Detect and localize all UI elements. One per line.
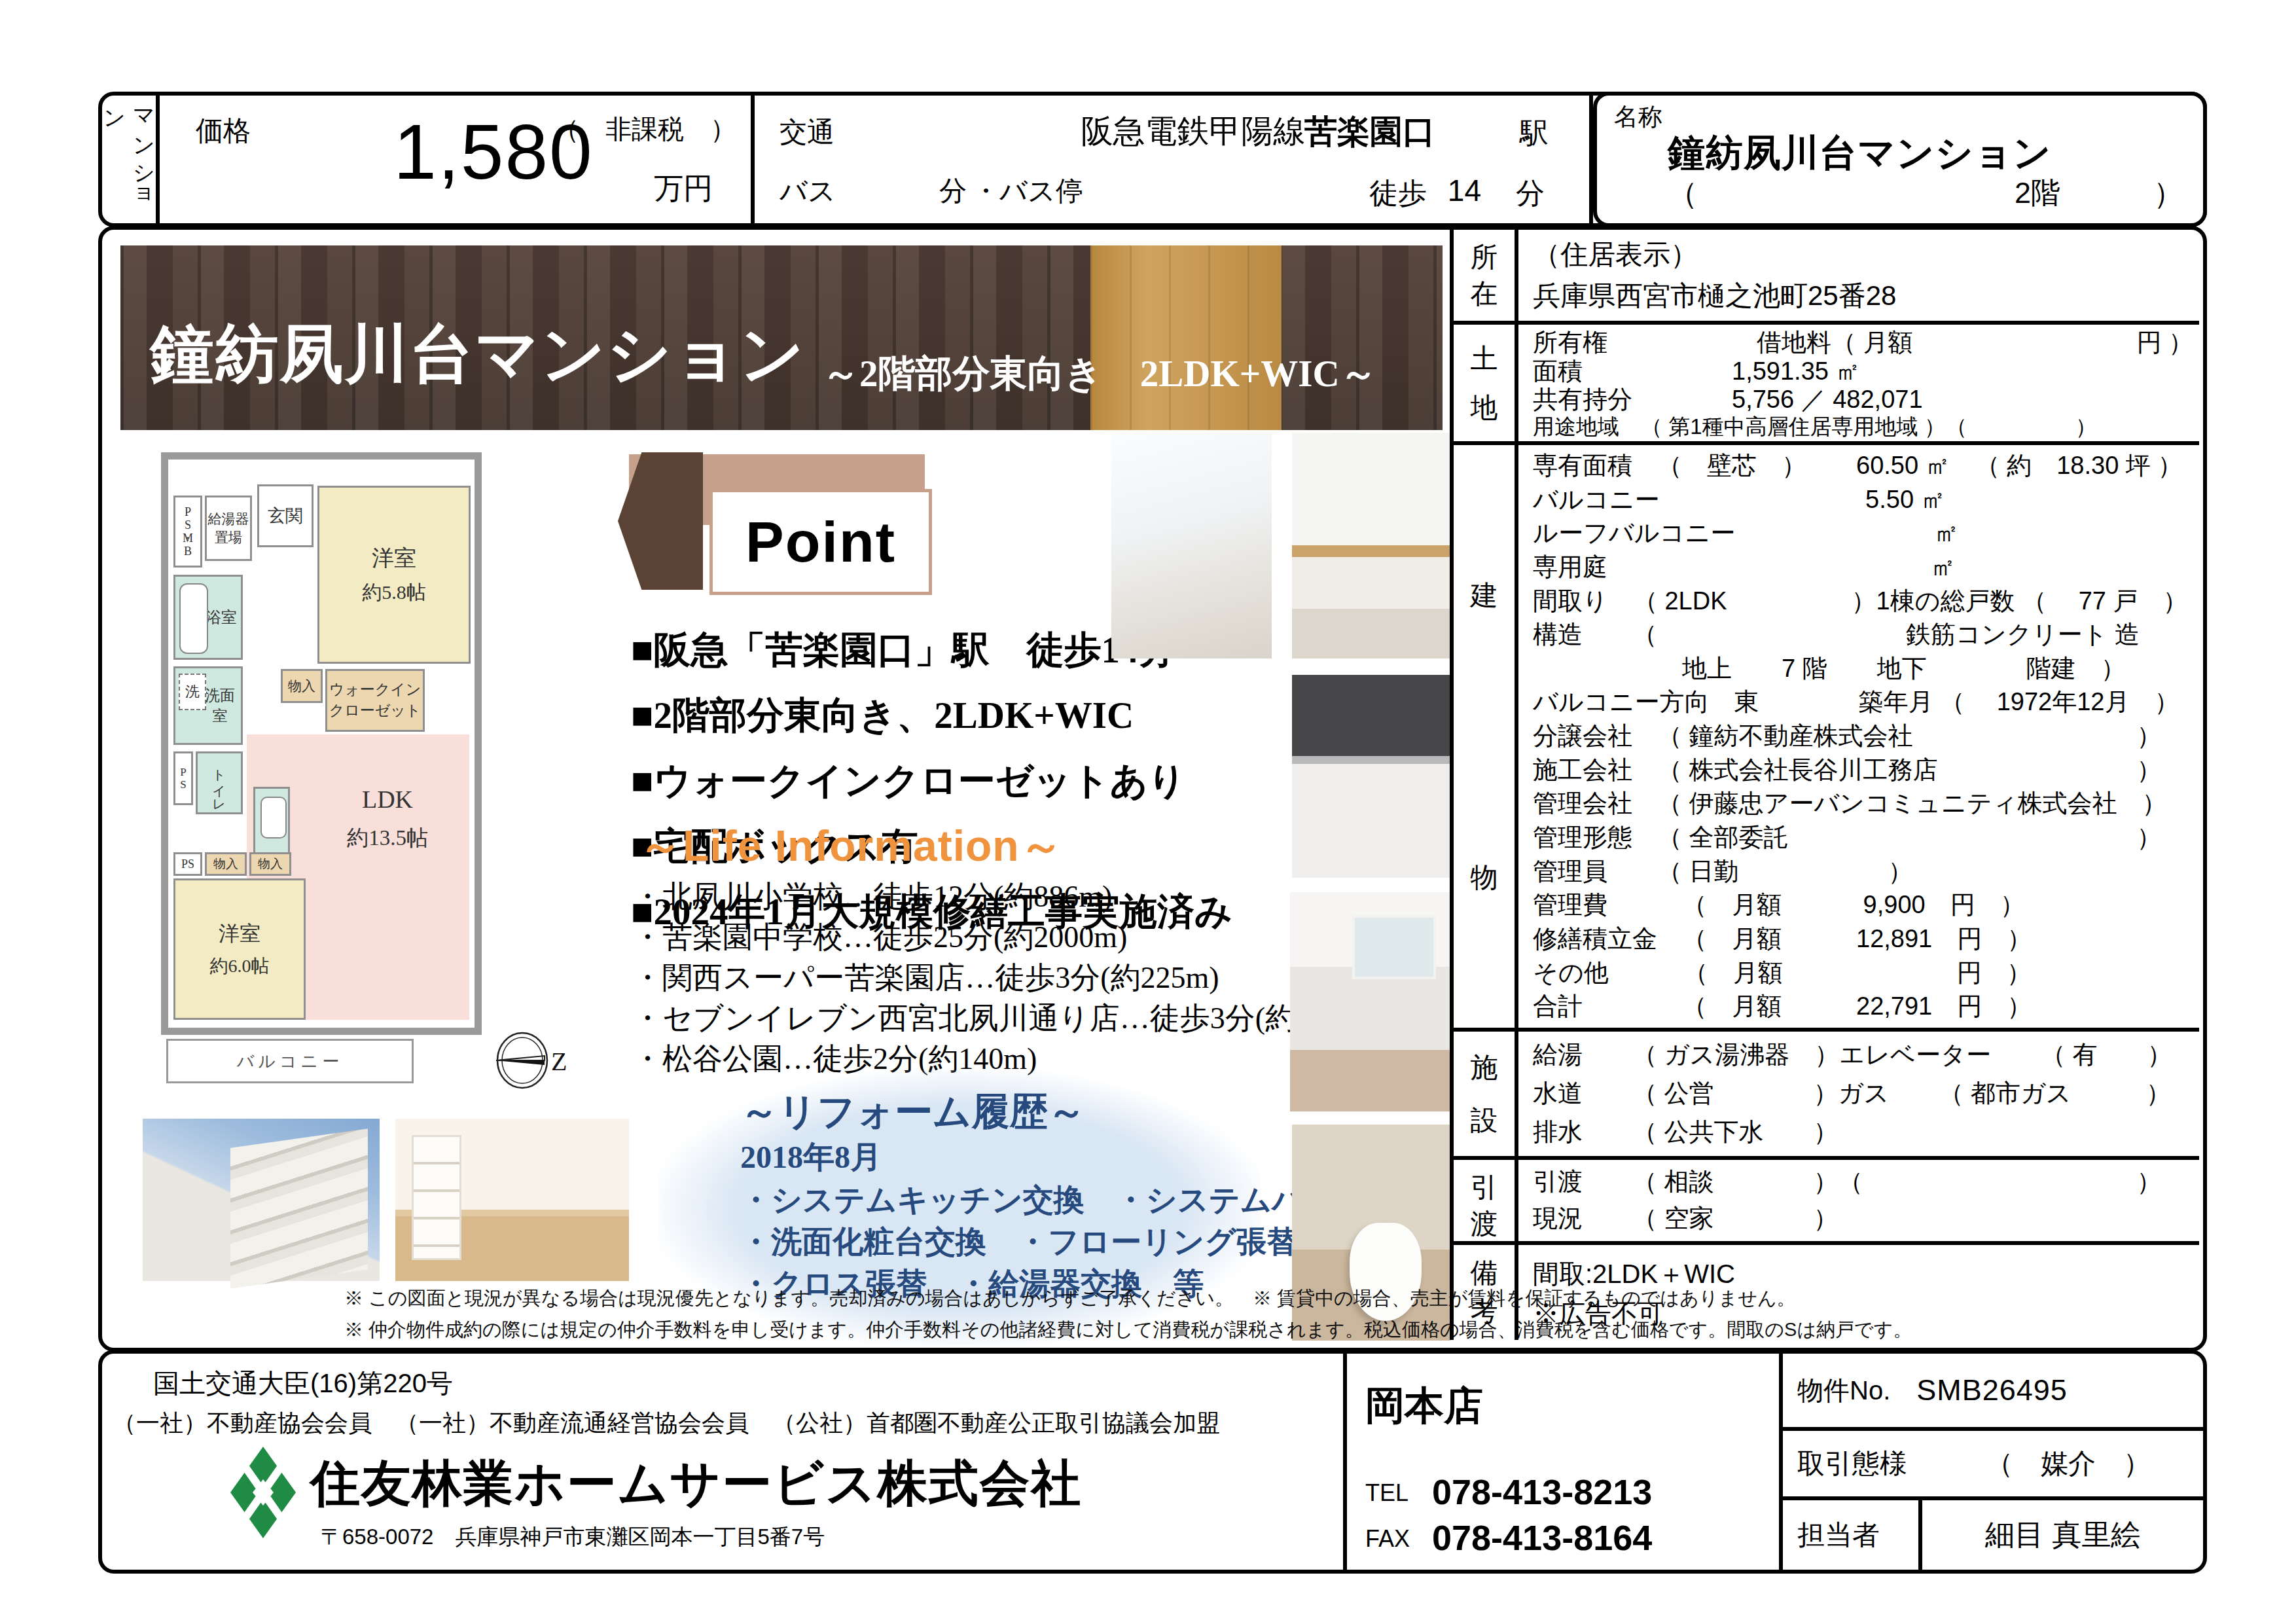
room-storage1: 物入	[281, 669, 323, 703]
detail-row: 専用庭 ㎡	[1533, 553, 2199, 582]
room-toilet: トイレ	[196, 751, 243, 814]
property-no-value: SMB26495	[1916, 1373, 2068, 1407]
room-label: PS	[178, 766, 189, 791]
detail-row: 管理形態 （ 全部委託 ）	[1533, 823, 2199, 852]
detail-row: 面積 1,591.35 ㎡	[1533, 357, 2199, 386]
title-banner: 鐘紡夙川台マンション ～2階部分東向き 2LDK+WIC～	[120, 245, 1443, 430]
section-remarks: 備考 間取:2LDK＋WIC ※広告不可	[1454, 1245, 2199, 1340]
agent-row: 担当者 細目 真里絵	[1783, 1500, 2203, 1570]
disclaimer-line: ※ 仲介物件成約の際には規定の仲介手数料を申し受けます。仲介手数料その他諸経費に…	[344, 1314, 1496, 1345]
room-label: LDK約13.5帖	[347, 781, 428, 856]
footer-bar: 国土交通大臣(16)第220号 （一社）不動産協会会員 （一社）不動産流通経営協…	[98, 1350, 2207, 1574]
room-label: PS・MB	[182, 505, 194, 558]
detail-row: ※広告不可	[1533, 1293, 2199, 1333]
floor-plan-unit: PS・MB 給湯器置場 玄関 洋室約5.8帖 浴室 洗 洗面室	[161, 452, 482, 1035]
room-label: 洋室約6.0帖	[210, 918, 270, 981]
station-name: 苦楽園口	[1304, 110, 1435, 154]
agent-label: 担当者	[1783, 1500, 1922, 1570]
property-type-tab: マンション	[102, 96, 160, 223]
name-label: 名称	[1614, 101, 1662, 134]
detail-row: 専有面積 （ 壁芯 ） 60.50 ㎡ （ 約 18.30 坪 ）	[1533, 452, 2199, 480]
detail-row: 構造 （ 鉄筋コンクリート 造	[1533, 621, 2199, 649]
room-label: ウォークインクローゼット	[329, 679, 422, 721]
disclaimer: ※ この図面と現況が異なる場合は現況優先となります。売却済みの場合はあしからずご…	[344, 1282, 1496, 1345]
fax-number: 078-413-8164	[1432, 1517, 1652, 1558]
point-title: Point	[745, 509, 896, 575]
access-cell: 交通 阪急電鉄甲陽線 苦楽園口 駅 バス 分 ・バス停 徒歩 14 分	[755, 96, 1593, 223]
bus-stop-label: ・バス停	[972, 173, 1083, 209]
photo-building-exterior	[143, 1119, 380, 1281]
banner-subtitle: ～2階部分東向き 2LDK+WIC～	[822, 349, 1377, 399]
transaction-row: 取引態様 （ 媒介 ）	[1783, 1431, 2203, 1500]
company-logo-icon	[230, 1447, 296, 1541]
walk-min-label: 分	[1516, 174, 1545, 213]
section-building: 建物 専有面積 （ 壁芯 ） 60.50 ㎡ （ 約 18.30 坪 ） バルコ…	[1454, 445, 2199, 1032]
section-handover: 引渡 引渡 （ 相談 ）（ ） 現況 （ 空家 ）	[1454, 1160, 2199, 1245]
room-label: 給湯器置場	[207, 510, 250, 547]
floor-paren-close: ）	[2153, 173, 2183, 214]
floor-plan: PS・MB 給湯器置場 玄関 洋室約5.8帖 浴室 洗 洗面室	[161, 452, 482, 1084]
balcony: バルコニー	[166, 1039, 414, 1083]
detail-row: バルコニー方向 東 築年月 （ 1972年12月 ）	[1533, 688, 2199, 717]
photo-kitchen	[1292, 433, 1450, 659]
room-western-6-0: 洋室約6.0帖	[173, 878, 306, 1020]
section-rows: 給湯 （ ガス湯沸器 ）エレベーター （ 有 ） 水道 （ 公営 ）ガス （ 都…	[1518, 1032, 2199, 1156]
photo-washbasin	[1290, 892, 1450, 1111]
detail-row: ルーフバルコニー ㎡	[1533, 519, 2199, 548]
bathtub-icon	[179, 583, 208, 654]
detail-row: 所有権 借地料（ 月額 円 ）	[1533, 329, 2199, 357]
bus-min-label: 分	[939, 173, 967, 209]
detail-row: 排水 （ 公共下水 ）	[1533, 1118, 2199, 1147]
photo-western-room	[1111, 433, 1272, 659]
header-bar: マンション 価格 1,580 （ 非課税 ） 万円 交通 阪急電鉄甲陽線 苦楽園…	[98, 92, 2207, 227]
detail-row: 管理員 （ 日勤 ）	[1533, 857, 2199, 886]
detail-row: その他 （ 月額 円 ）	[1533, 959, 2199, 988]
detail-row: 給湯 （ ガス湯沸器 ）エレベーター （ 有 ）	[1533, 1041, 2199, 1070]
section-rows: 専有面積 （ 壁芯 ） 60.50 ㎡ （ 約 18.30 坪 ） バルコニー …	[1518, 445, 2199, 1028]
section-label: 施設	[1454, 1032, 1518, 1156]
washer-box: 洗	[179, 674, 206, 710]
room-label: PS	[181, 857, 194, 871]
detail-row: 用途地域 （ 第1種中高層住居専用地域 ）（ ）	[1533, 414, 2199, 439]
transaction-label: 取引態様	[1797, 1445, 1907, 1482]
price-tax-note: （ 非課税 ）	[553, 111, 736, 147]
station-suffix: 駅	[1520, 114, 1549, 153]
room-storage2: 物入	[205, 852, 247, 876]
section-location: 所在 （住居表示） 兵庫県西宮市樋之池町25番28	[1454, 230, 2199, 325]
tel-number: 078-413-8213	[1432, 1471, 1652, 1512]
detail-row: 水道 （ 公営 ）ガス （ 都市ガス ）	[1533, 1079, 2199, 1108]
floor-paren-open: （	[1668, 173, 1698, 214]
room-ps1: PS	[173, 751, 193, 805]
room-western-5-8: 洋室約5.8帖	[317, 486, 471, 664]
section-label: 引渡	[1454, 1160, 1518, 1241]
detail-row: 間取り （ 2LDK ）1棟の総戸数 （ 77 戸 ）	[1533, 587, 2199, 616]
section-label: 所在	[1454, 230, 1518, 321]
fax-label: FAX	[1365, 1525, 1410, 1553]
room-washroom: 洗 洗面室	[173, 666, 243, 745]
membership-line: （一社）不動産協会会員 （一社）不動産流通経営協会会員 （公社）首都圏不動産公正…	[113, 1407, 1220, 1439]
branch-name: 岡本店	[1365, 1380, 1483, 1433]
room-label: 物入	[288, 677, 315, 695]
company-name: 住友林業ホームサービス株式会社	[310, 1451, 1082, 1518]
detail-row: 現況 （ 空家 ）	[1533, 1204, 2199, 1233]
property-no-row: 物件No. SMB26495	[1783, 1354, 2203, 1431]
agent-name: 細目 真里絵	[1922, 1500, 2203, 1570]
section-rows: 引渡 （ 相談 ）（ ） 現況 （ 空家 ）	[1518, 1160, 2199, 1241]
section-land: 土地 所有権 借地料（ 月額 円 ） 面積 1,591.35 ㎡ 共有持分 5,…	[1454, 325, 2199, 445]
walk-label: 徒歩	[1369, 174, 1427, 213]
section-facilities: 施設 給湯 （ ガス湯沸器 ）エレベーター （ 有 ） 水道 （ 公営 ）ガス …	[1454, 1032, 2199, 1160]
detail-row: 分譲会社 （ 鐘紡不動産株式会社 ）	[1533, 722, 2199, 751]
footer-company-block: 国土交通大臣(16)第220号 （一社）不動産協会会員 （一社）不動産流通経営協…	[102, 1354, 1347, 1570]
detail-row: バルコニー 5.50 ㎡	[1533, 486, 2199, 514]
detail-row: 修繕積立金 （ 月額 12,891 円 ）	[1533, 925, 2199, 954]
floor-value: 2階	[2015, 173, 2060, 213]
detail-row: 引渡 （ 相談 ）（ ）	[1533, 1168, 2199, 1197]
life-info-title: ～Life Information～	[639, 817, 1064, 876]
banner-title: 鐘紡夙川台マンション	[151, 312, 806, 398]
room-wic: ウォークインクローゼット	[325, 669, 425, 732]
property-name: 鐘紡夙川台マンション	[1668, 128, 2052, 179]
room-label: 物入	[258, 856, 283, 873]
sink-icon	[260, 797, 287, 839]
room-label: 浴室	[206, 607, 237, 628]
price-unit: 万円	[654, 169, 713, 208]
disclaimer-line: ※ この図面と現況が異なる場合は現況優先となります。売却済みの場合はあしからずご…	[344, 1282, 1496, 1314]
compass-icon: Z	[495, 1030, 567, 1092]
section-label: 備考	[1454, 1245, 1518, 1340]
detail-table: 所在 （住居表示） 兵庫県西宮市樋之池町25番28 土地 所有権 借地料（ 月額…	[1450, 230, 2199, 1340]
room-ps2: PS	[173, 852, 202, 876]
room-label: 洋室約5.8帖	[362, 541, 426, 608]
price-cell: 価格 1,580 （ 非課税 ） 万円	[160, 96, 755, 223]
detail-row: 管理費 （ 月額 9,900 円 ）	[1533, 891, 2199, 920]
point-title-box: Point	[709, 489, 932, 595]
detail-row: 共有持分 5,756 ／ 482,071	[1533, 386, 2199, 414]
main-panel: 鐘紡夙川台マンション ～2階部分東向き 2LDK+WIC～ PS・MB 給湯器置…	[98, 226, 2207, 1352]
room-ps-mb: PS・MB	[173, 496, 202, 568]
bus-label: バス	[780, 173, 836, 209]
room-label: 玄関	[268, 504, 303, 528]
access-label: 交通	[780, 114, 834, 151]
property-no-label: 物件No.	[1797, 1373, 1890, 1409]
section-rows: 所有権 借地料（ 月額 円 ） 面積 1,591.35 ㎡ 共有持分 5,756…	[1518, 325, 2199, 441]
room-entrance: 玄関	[257, 484, 314, 547]
wood-plank-accent	[1090, 245, 1282, 430]
price-label: 価格	[196, 113, 251, 149]
detail-row: 兵庫県西宮市樋之池町25番28	[1533, 280, 2199, 312]
detail-row: 間取:2LDK＋WIC	[1533, 1254, 2199, 1293]
section-rows: （住居表示） 兵庫県西宮市樋之池町25番28	[1518, 230, 2199, 321]
room-bath: 浴室	[173, 575, 243, 660]
section-label: 土地	[1454, 325, 1518, 441]
section-label: 建物	[1454, 445, 1518, 1028]
transaction-value: （ 媒介 ）	[1986, 1445, 2151, 1482]
section-rows: 間取:2LDK＋WIC ※広告不可	[1518, 1245, 2199, 1340]
property-flyer: マンション 価格 1,580 （ 非課税 ） 万円 交通 阪急電鉄甲陽線 苦楽園…	[0, 0, 2296, 1624]
room-label: 物入	[213, 856, 238, 873]
license-number: 国土交通大臣(16)第220号	[153, 1365, 453, 1401]
company-address: 〒658-0072 兵庫県神戸市東灘区岡本一丁目5番7号	[321, 1523, 825, 1552]
compass-letter: Z	[551, 1047, 567, 1076]
detail-row: 地上 7 階 地下 階建 ）	[1533, 655, 2199, 683]
photo-bathroom	[1292, 675, 1450, 878]
detail-row: 施工会社 （ 株式会社長谷川工務店 ）	[1533, 756, 2199, 785]
footer-branch-block: 岡本店 TEL 078-413-8213 FAX 078-413-8164	[1347, 1354, 1783, 1570]
room-storage3: 物入	[249, 852, 291, 876]
tel-label: TEL	[1365, 1479, 1408, 1507]
room-boiler: 給湯器置場	[205, 496, 252, 561]
detail-row: 合計 （ 月額 22,791 円 ）	[1533, 992, 2199, 1021]
name-cell: 名称 鐘紡夙川台マンション （ 2階 ）	[1593, 92, 2207, 227]
detail-row: 管理会社 （ 伊藤忠アーバンコミュニティ株式会社 ）	[1533, 789, 2199, 818]
footer-property-block: 物件No. SMB26495 取引態様 （ 媒介 ） 担当者 細目 真里絵	[1783, 1354, 2203, 1570]
room-label: トイレ	[213, 761, 226, 805]
walk-minutes: 14	[1448, 173, 1481, 208]
detail-row: （住居表示）	[1533, 239, 2199, 270]
photo-living-interior	[395, 1119, 629, 1281]
